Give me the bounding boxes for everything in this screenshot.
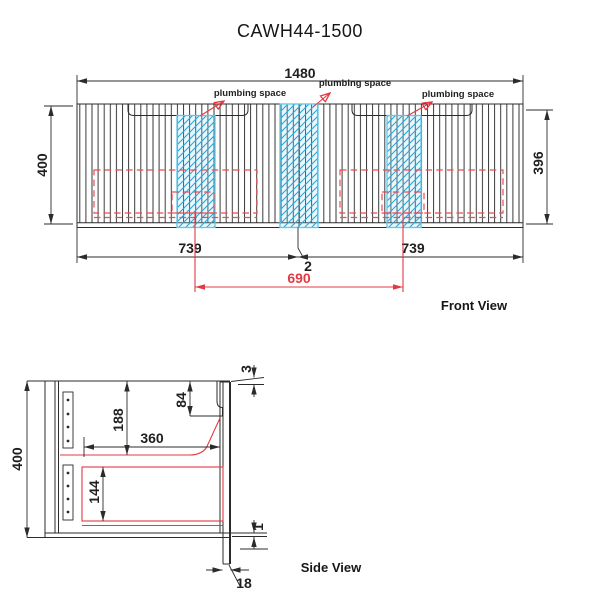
side-dim-upper-cavity: 188 (110, 382, 127, 456)
front-dim-halves: 739 739 2 (77, 228, 523, 275)
dim-text-400-front: 400 (34, 153, 50, 177)
plumbing-label-center: plumbing space (319, 78, 391, 89)
dim-text-18: 18 (236, 575, 252, 591)
plumbing-zone-left (177, 116, 215, 228)
drawer-slide-upper (63, 392, 73, 448)
front-view: plumbing space plumbing space plumbing s… (34, 65, 553, 313)
dim-text-739-left: 739 (178, 240, 202, 256)
dim-text-1480: 1480 (284, 65, 315, 81)
front-dim-height-right: 396 (526, 110, 553, 224)
front-view-label: Front View (441, 298, 508, 313)
page-title: CAWH44-1500 (237, 21, 363, 41)
dim-text-1: 1 (250, 523, 266, 531)
side-dim-door-thickness: 18 (206, 565, 252, 591)
dim-text-739-right: 739 (401, 240, 425, 256)
dim-text-400-side: 400 (9, 447, 25, 471)
front-dim-height-left: 400 (34, 106, 73, 224)
dim-text-396: 396 (530, 151, 546, 175)
plumbing-label-right: plumbing space (422, 89, 494, 100)
plumbing-label-left: plumbing space (214, 88, 286, 99)
side-view-label: Side View (301, 560, 362, 575)
side-dim-lower-cavity: 144 (86, 467, 103, 521)
vanity-drawing: CAWH44-1500 (0, 0, 600, 600)
side-dim-recess: 84 (173, 382, 190, 417)
plumbing-callout-center: plumbing space (313, 78, 391, 107)
drawer-slide-lower (63, 465, 73, 520)
side-view: 400 188 84 360 144 3 (9, 365, 362, 591)
side-dim-bottom-gap: 1 (232, 520, 268, 549)
plumbing-zone-right (387, 116, 421, 228)
dim-text-360: 360 (140, 430, 164, 446)
dim-text-3: 3 (238, 365, 254, 373)
plumbing-zone-center (280, 104, 318, 228)
technical-drawing-page: CAWH44-1500 (0, 0, 600, 600)
dim-text-84: 84 (173, 392, 189, 408)
side-dim-top-gap: 3 (231, 365, 264, 397)
side-dim-height: 400 (9, 381, 27, 538)
dim-text-188: 188 (110, 408, 126, 432)
dim-text-690: 690 (287, 270, 311, 286)
side-door-panel (190, 381, 230, 564)
dim-text-144: 144 (86, 480, 102, 504)
